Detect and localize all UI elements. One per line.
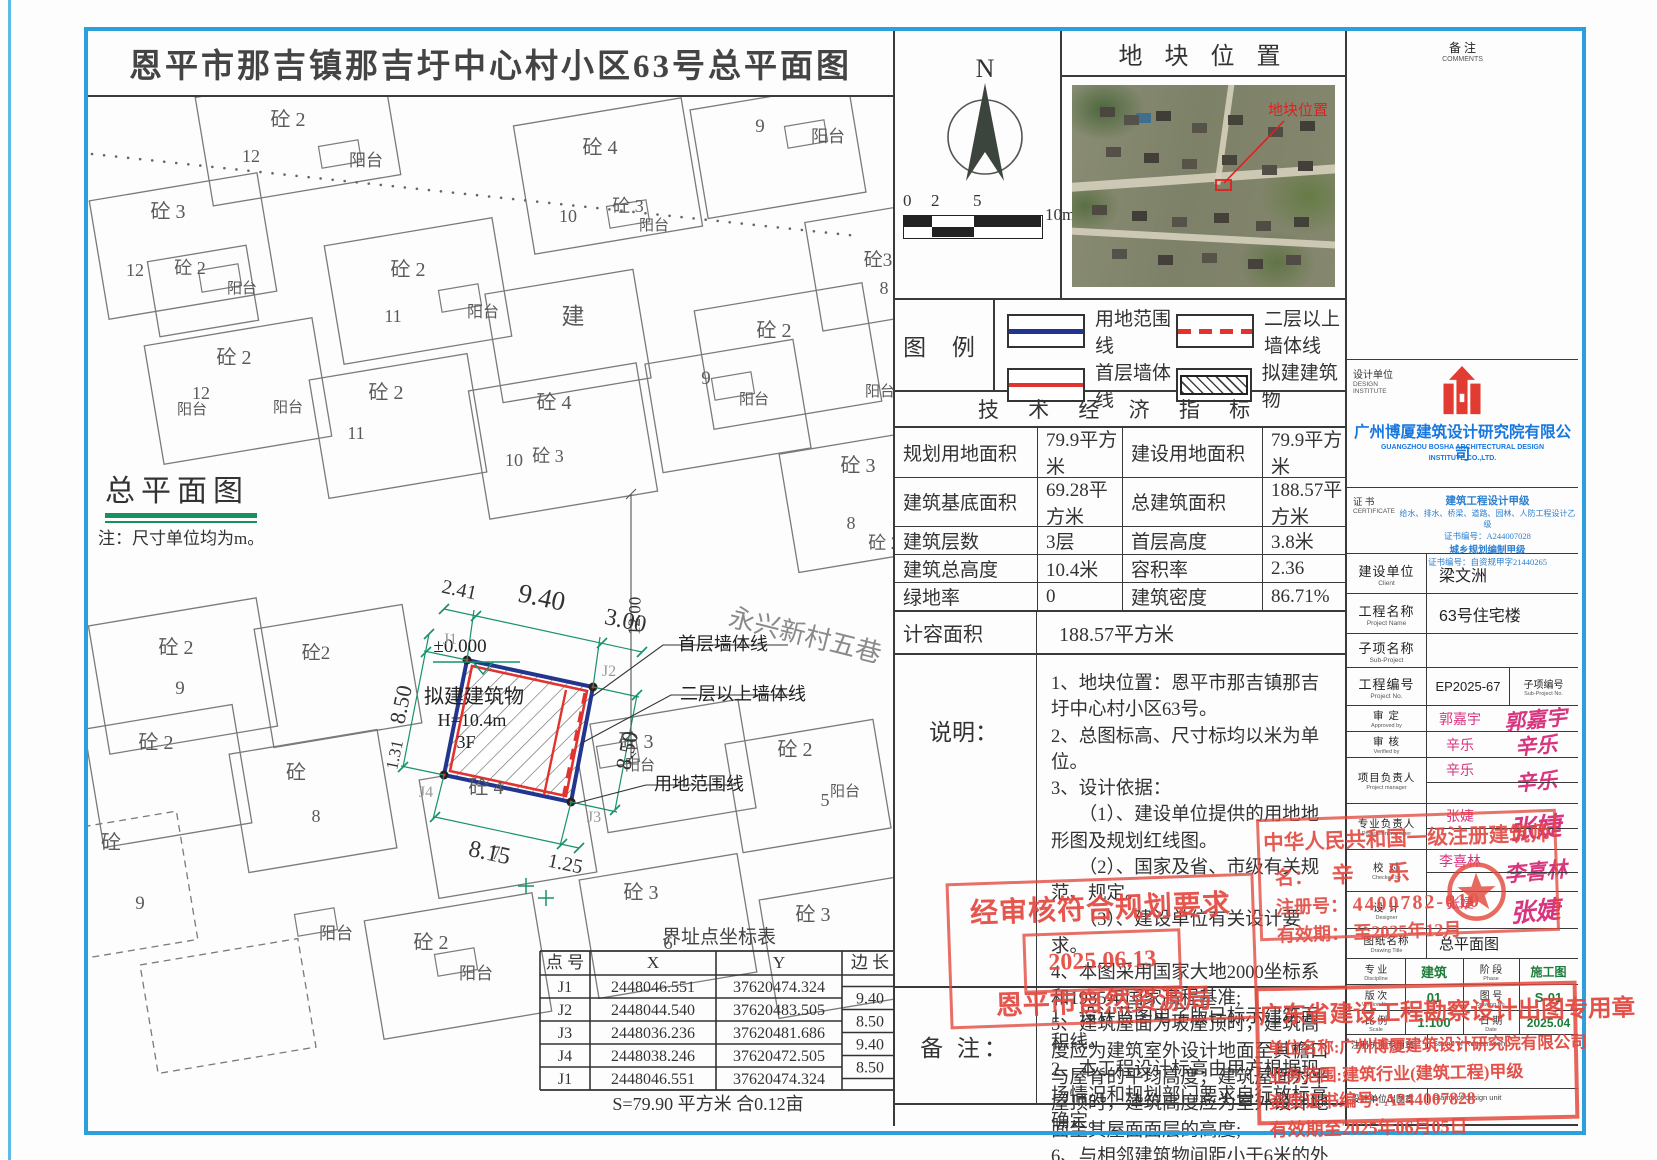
plan-text-label: 砼 2 [778,738,813,761]
plan-unit-note: 注：尺寸单位均为m。 [98,524,264,549]
plan-text-label: 二层以上墙体线 [680,684,806,704]
plan-text-label: 砼 2 [757,319,792,342]
location-box: 地 块 位 置 地块位置 [1060,31,1345,298]
plan-text-label: 砼 2 [414,931,449,954]
indicator-value: 10.4米 [1037,554,1122,582]
tb-project-no: 工程编号Project No. EP2025-67 子项编号 Sub-Proje… [1347,668,1578,706]
plan-text-label: 12 [126,260,144,280]
title-divider [88,95,895,97]
plan-text-label: 阳台 [273,399,303,416]
certificate-line: 建筑工程设计甲级 [1399,493,1576,508]
plan-text-label: 用地范围线 [654,774,744,794]
coord-cell: 2448046.551 [611,979,695,996]
drawing-sheet: 恩平市那吉镇那吉圩中心村小区63号总平面图 [0,0,1657,1160]
subtitle-underline-thick [105,513,257,518]
plan-text-label: 5 [821,790,830,810]
plan-text-label: 8.15 [466,836,512,870]
indicator-value: 86.71% [1262,582,1345,610]
plan-text-label: 9 [175,678,185,699]
coord-table-title: 界址点坐标表 [662,926,776,948]
indicator-label: 首层高度 [1122,526,1262,554]
coord-table-header: 边 长 [851,953,889,972]
plan-text-label: 砼 3 [841,454,876,477]
plan-text-label: 阳台 [227,280,257,297]
plan-text-label: 砼 2 [868,533,893,553]
site-plan-drawing: 界址点坐标表点 号XY边 长J12448046.55137620474.324J… [88,96,893,1126]
page-left-edge-line [8,0,11,1160]
edge-length-cell: 8.50 [856,1060,884,1077]
column-divider-1 [893,31,895,1126]
proposed-plot [433,656,598,807]
plan-text-label: 9 [701,368,711,389]
coord-cell: 37620472.505 [733,1048,825,1065]
plan-text-label: J1 [443,631,457,648]
plan-text-label: 砼 3 [151,200,186,223]
legend-item: 用地范围线 [1007,304,1176,358]
plan-text-label: 9 [755,116,765,137]
plan-text-label: 10 [505,450,523,470]
tb-approved: 审 定Approved by 郭嘉宇 郭嘉宇 [1347,706,1578,732]
plan-text-label: 砼 2 [271,108,306,131]
plan-text-label: 建 [562,304,585,329]
indicator-value: 3.8米 [1262,526,1345,554]
plan-text-label: 1.25 [546,850,585,879]
plan-text-label: J3 [587,809,601,826]
north-label: N [976,54,995,83]
indicator-label: 绿地率 [895,582,1037,610]
indicators-table: 规划用地面积79.9平方米建设用地面积79.9平方米建筑基底面积69.28平方米… [895,428,1345,612]
press-seal-stamp: 广东省建设工程勘察设计出图专用章 单位名称:广州博厦建筑设计研究院有限公司 业务… [1255,981,1580,1126]
coord-cell: 37620474.324 [733,979,825,996]
fa-label: 计容面积 [895,612,1037,653]
tb-project: 工程名称Project Name 63号住宅楼 [1347,594,1578,634]
note-line: 6、与相邻建筑物间距小于6米的外墙均为防火墙，墙上所有窗均为可自动关闭的甲级防火… [1051,1144,1335,1160]
plan-text-label: 12 [242,146,260,166]
plan-text-label: H=10.4m [438,710,507,730]
plan-text-label: 阳台 [865,383,893,400]
indicator-value: 2.36 [1262,554,1345,582]
dotted-boundary-line [92,154,858,236]
note-line: 3、设计依据： [1051,776,1335,802]
plan-text-label: 阳台 [830,783,860,800]
coord-cell: 2448046.551 [611,1071,695,1088]
note-line: 1、地块位置：恩平市那吉镇那吉圩中心村小区63号。 [1051,671,1335,724]
coord-cell: J1 [558,979,572,996]
coord-cell: J4 [558,1048,572,1065]
plan-text-label: 阳台 [639,217,669,234]
tb-project-manager: 项目负责人Project manager 辛乐 辛乐 [1347,758,1578,804]
floor-area-ratio-row: 计容面积 188.57平方米 [895,612,1345,655]
plan-text-label: 8 [880,278,889,298]
plan-text-label: 砼 2 [217,346,252,369]
plan-text-label: 8 [312,806,321,826]
area-note: S=79.90 平方米 合0.12亩 [612,1094,803,1114]
plan-text-label: ±0.000 [433,636,486,657]
plan-text-label: 8 [847,513,856,533]
plan-text-label: J2 [602,663,616,680]
balcony-outlines [198,120,827,976]
column-divider-2 [1345,31,1347,1126]
indicator-value: 79.9平方米 [1262,428,1345,477]
plan-text-label: 砼 4 [583,136,618,159]
plan-text-label: 拟建建筑物 [424,685,524,708]
indicators-header: 技 术 经 济 指 标 [895,392,1345,428]
plan-text-label: 砼 2 [391,258,426,281]
plan-text-label: 11 [347,423,364,443]
plan-text-label: 12.00 [624,596,644,635]
coord-cell: 2448044.540 [611,1002,695,1019]
indicator-value: 0 [1037,582,1122,610]
boundary-point-table: 界址点坐标表点 号XY边 长J12448046.55137620474.324J… [540,926,893,1114]
plan-text-label: 阳台 [459,964,493,983]
coord-cell: 37620483.505 [733,1002,825,1019]
plan-text-label: 11 [384,306,401,326]
indicator-label: 建设用地面积 [1122,428,1262,477]
coord-cell: 37620474.324 [733,1071,825,1088]
plan-text-label: 砼3 [864,249,893,271]
plan-text-label: 砼 2 [369,381,404,404]
plan-text-label: 9 [135,893,145,914]
plan-text-label: 砼 4 [537,391,572,414]
plan-text-label: 阳台 [349,151,383,170]
plan-text-label: 砼 3 [532,446,564,466]
plan-text-label: 12 [192,383,210,403]
legend-swatch-red-dashed [1176,314,1254,348]
plan-text-label: 砼 [286,761,306,784]
tb-comments: 备 注 COMMENTS [1347,31,1578,360]
fa-value: 188.57平方米 [1037,612,1345,653]
plan-subtitle: 总平面图 [105,466,257,523]
tb-client: 建设单位Client 梁文洲 [1347,554,1578,594]
indicator-label: 建筑总高度 [895,554,1037,582]
plan-text-label: 阳台 [319,924,353,943]
edge-length-cell: 9.40 [856,1037,884,1054]
coord-table-header: X [647,953,659,972]
plan-text-label: 3F [456,732,475,752]
location-title: 地 块 位 置 [1062,31,1345,77]
plan-text-label: 砼 [101,831,121,854]
coord-cell: 2448036.236 [611,1025,695,1042]
indicator-value: 69.28平方米 [1037,477,1122,527]
coord-table-header: 点 号 [546,953,584,972]
scale-bar: 0 2 5 10m [901,191,1061,251]
plan-text-label: 砼 2 [159,636,194,659]
certificate-line: 证书编号：A244007028 [1399,530,1576,542]
indicator-label: 建筑密度 [1122,582,1262,610]
legend-item: 二层以上墙体线 [1176,304,1345,358]
subtitle-underline-thin [105,521,257,523]
plan-text-label: 砼 2 [139,731,174,754]
plan-text-label: 砼 3 [796,903,831,926]
plan-text-label: 阳台 [811,127,845,146]
planning-approval-stamp: 经审核符合规划要求 2025.06.13 恩平市自然资源局 [946,873,1259,1030]
plan-text-label: 砼 3 [624,881,659,904]
indicator-value: 3层 [1037,526,1122,554]
indicator-value: 188.57平方米 [1262,477,1345,527]
coord-table-header: Y [773,953,785,972]
title-block: 备 注 COMMENTS 设计单位 DESIGN INSTITUTE 广州博厦建… [1347,31,1578,1126]
legend-items: 用地范围线二层以上墙体线首层墙体线拟建建筑物 [995,300,1345,390]
coord-cell: J1 [558,1071,572,1088]
plan-text-label: 6 [663,933,673,954]
plan-text-label: J4 [419,784,433,801]
top-section: N 0 2 5 10m 地 块 位 置 [895,31,1345,300]
plan-text-label: 首层墙体线 [678,634,768,654]
company-logo [1435,366,1489,416]
architect-seal-icon [1445,860,1509,924]
plan-text-label: 10 [559,206,577,226]
legend-title: 图 例 [895,300,995,390]
site-marker-overlay: 地块位置 [1072,85,1335,287]
indicator-label: 容积率 [1122,554,1262,582]
plan-text-label: 砼 4 [469,776,504,799]
plan-text-label: 9.40 [516,578,568,617]
aerial-photo: 地块位置 [1072,85,1335,287]
tb-subproject: 子项名称Sub-Project [1347,634,1578,668]
plan-text-label: 砼 3 [612,196,644,216]
edge-length-cell: 9.40 [856,991,884,1008]
plan-text-label: 砼2 [302,642,331,664]
sheet-title: 恩平市那吉镇那吉圩中心村小区63号总平面图 [88,31,893,95]
coord-cell: 37620481.686 [733,1025,825,1042]
plan-text-label: 阳台 [467,303,499,321]
plan-text-label: 砼 2 [174,258,206,278]
edge-length-cell: 8.50 [856,1014,884,1031]
plan-text-label: 2.41 [440,576,479,605]
note-line: 2、总图标高、尺寸标均以米为单位。 [1051,724,1335,777]
site-marker-label: 地块位置 [1268,102,1328,119]
certificate-line: 给水、排水、桥梁、道路、园林、人防工程设计乙级 [1399,508,1576,530]
tb-design-institute: 设计单位 DESIGN INSTITUTE 广州博厦建筑设计研究院有限公司 GU… [1347,360,1578,488]
indicator-label: 规划用地面积 [895,428,1037,477]
registered-architect-stamp: 中华人民共和国一级注册建筑师 名： 辛 乐 注册号： 4400782-010 有… [1256,809,1560,941]
tb-verified: 审 核Verified by 辛乐 辛乐 [1347,732,1578,758]
coord-cell: J3 [558,1025,572,1042]
north-arrow: N [913,49,1063,189]
plan-text-label: 阳台 [739,391,769,408]
coord-cell: J2 [558,1002,572,1019]
plan-text-label: 阳台 [177,401,207,418]
tb-certificate: 证 书 CERTIFICATE 建筑工程设计甲级给水、排水、桥梁、道路、园林、人… [1347,488,1578,554]
indicator-label: 建筑基底面积 [895,477,1037,527]
indicator-value: 79.9平方米 [1037,428,1122,477]
indicator-label: 建筑层数 [895,526,1037,554]
legend-section: 图 例 用地范围线二层以上墙体线首层墙体线拟建建筑物 [895,300,1345,392]
indicator-label: 总建筑面积 [1122,477,1262,527]
legend-swatch-blue-solid [1007,314,1085,348]
coord-cell: 2448038.246 [611,1048,695,1065]
